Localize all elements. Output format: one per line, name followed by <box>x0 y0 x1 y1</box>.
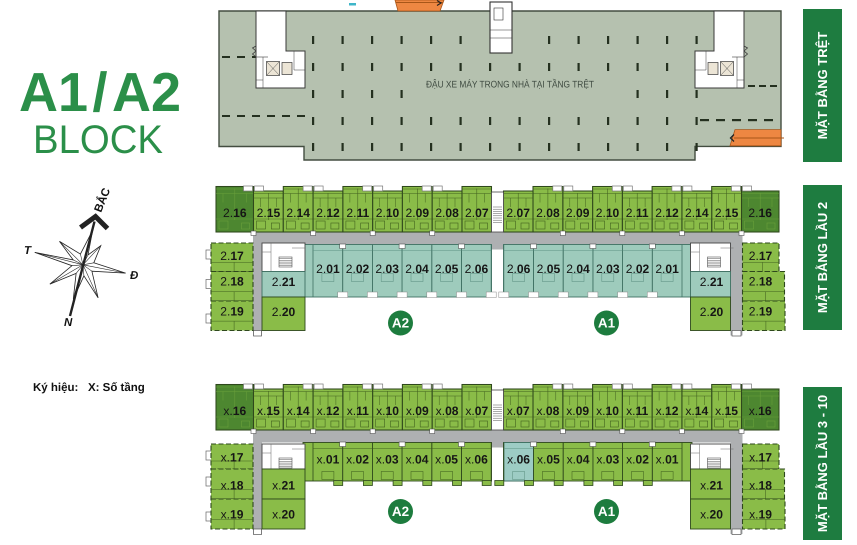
svg-text:x.14: x.14 <box>287 404 310 418</box>
svg-text:2.17: 2.17 <box>220 249 244 263</box>
svg-text:2.15: 2.15 <box>715 206 739 220</box>
svg-text:2.12: 2.12 <box>655 206 679 220</box>
svg-text:x.12: x.12 <box>656 404 679 418</box>
svg-text:MẶT BẰNG TRỆT: MẶT BẰNG TRỆT <box>815 32 830 140</box>
svg-text:x.06: x.06 <box>507 453 530 467</box>
svg-text:x.10: x.10 <box>596 404 619 418</box>
svg-text:2.21: 2.21 <box>272 275 296 289</box>
svg-text:2.01: 2.01 <box>316 262 340 276</box>
svg-text:x.21: x.21 <box>272 479 295 493</box>
svg-text:x.15: x.15 <box>257 404 280 418</box>
svg-text:N: N <box>64 317 73 329</box>
svg-text:x.09: x.09 <box>566 404 589 418</box>
svg-text:2.05: 2.05 <box>537 262 561 276</box>
svg-text:x.17: x.17 <box>221 451 244 465</box>
svg-text:x.05: x.05 <box>537 453 560 467</box>
svg-text:x.04: x.04 <box>567 453 590 467</box>
svg-text:2.20: 2.20 <box>700 305 724 319</box>
svg-text:2.04: 2.04 <box>405 262 429 276</box>
svg-text:x.02: x.02 <box>346 453 369 467</box>
svg-text:2.01: 2.01 <box>655 262 679 276</box>
svg-text:x.16: x.16 <box>749 404 772 418</box>
svg-text:x.07: x.07 <box>507 404 530 418</box>
svg-text:x.01: x.01 <box>656 453 679 467</box>
svg-text:x.19: x.19 <box>221 508 244 522</box>
svg-text:2.19: 2.19 <box>749 305 773 319</box>
svg-text:2.09: 2.09 <box>566 206 590 220</box>
svg-text:A2: A2 <box>392 316 409 331</box>
svg-text:x.16: x.16 <box>223 404 246 418</box>
svg-text:2.14: 2.14 <box>685 206 709 220</box>
svg-text:A2: A2 <box>392 504 409 519</box>
svg-text:2.10: 2.10 <box>376 206 400 220</box>
svg-text:x.12: x.12 <box>317 404 340 418</box>
svg-text:MẶT BẰNG LẦU 3 - 10: MẶT BẰNG LẦU 3 - 10 <box>815 395 830 532</box>
svg-text:A1: A1 <box>598 504 616 519</box>
svg-text:2.16: 2.16 <box>748 206 772 220</box>
svg-text:2.15: 2.15 <box>257 206 281 220</box>
svg-text:MẶT BẰNG LẦU 2: MẶT BẰNG LẦU 2 <box>815 202 830 313</box>
svg-text:2.21: 2.21 <box>700 275 724 289</box>
svg-text:x.06: x.06 <box>465 453 488 467</box>
svg-text:x.21: x.21 <box>700 479 723 493</box>
svg-text:2.11: 2.11 <box>346 206 369 220</box>
svg-text:A1: A1 <box>598 316 616 331</box>
svg-text:2.02: 2.02 <box>626 262 650 276</box>
svg-text:x.07: x.07 <box>465 404 488 418</box>
svg-text:x.18: x.18 <box>221 479 244 493</box>
svg-text:x.15: x.15 <box>715 404 738 418</box>
svg-text:x.17: x.17 <box>749 451 772 465</box>
svg-text:A1 / A2: A1 / A2 <box>19 61 181 123</box>
svg-text:x.10: x.10 <box>376 404 399 418</box>
svg-text:2.08: 2.08 <box>435 206 459 220</box>
svg-text:x.03: x.03 <box>596 453 619 467</box>
svg-text:2.18: 2.18 <box>220 275 244 289</box>
svg-text:2.04: 2.04 <box>566 262 590 276</box>
svg-text:x.20: x.20 <box>272 508 295 522</box>
svg-text:2.07: 2.07 <box>506 206 530 220</box>
svg-text:ĐẬU XE MÁY TRONG NHÀ TẠI TẦNG: ĐẬU XE MÁY TRONG NHÀ TẠI TẦNG TRỆT <box>426 79 594 91</box>
svg-text:2.03: 2.03 <box>375 262 399 276</box>
svg-text:x.14: x.14 <box>685 404 708 418</box>
svg-text:x.20: x.20 <box>700 508 723 522</box>
svg-text:x.01: x.01 <box>316 453 339 467</box>
svg-text:2.17: 2.17 <box>749 249 773 263</box>
svg-text:x.11: x.11 <box>347 404 369 418</box>
svg-text:2.05: 2.05 <box>435 262 459 276</box>
svg-text:2.16: 2.16 <box>223 206 247 220</box>
svg-text:x.08: x.08 <box>536 404 559 418</box>
svg-text:2.18: 2.18 <box>749 275 773 289</box>
svg-text:2.07: 2.07 <box>465 206 489 220</box>
svg-text:x.04: x.04 <box>406 453 429 467</box>
svg-text:2.14: 2.14 <box>286 206 310 220</box>
svg-text:2.02: 2.02 <box>346 262 370 276</box>
svg-text:2.20: 2.20 <box>272 305 296 319</box>
svg-text:x.11: x.11 <box>626 404 648 418</box>
svg-text:x.03: x.03 <box>376 453 399 467</box>
svg-text:2.19: 2.19 <box>220 305 244 319</box>
svg-text:x.09: x.09 <box>406 404 429 418</box>
svg-text:x.02: x.02 <box>626 453 649 467</box>
svg-text:x.08: x.08 <box>436 404 459 418</box>
svg-text:2.09: 2.09 <box>406 206 430 220</box>
svg-text:2.03: 2.03 <box>596 262 620 276</box>
svg-text:x.18: x.18 <box>749 479 772 493</box>
svg-text:2.12: 2.12 <box>316 206 340 220</box>
svg-text:2.06: 2.06 <box>507 262 531 276</box>
svg-text:2.10: 2.10 <box>596 206 620 220</box>
svg-text:2.08: 2.08 <box>536 206 560 220</box>
svg-text:Ký hiệu: X: Số tầng: Ký hiệu: X: Số tầng <box>33 382 145 394</box>
svg-text:2.06: 2.06 <box>465 262 489 276</box>
svg-text:x.19: x.19 <box>749 508 772 522</box>
svg-text:T: T <box>24 245 32 257</box>
svg-text:Đ: Đ <box>130 270 138 282</box>
svg-text:x.05: x.05 <box>435 453 458 467</box>
svg-text:2.11: 2.11 <box>626 206 649 220</box>
svg-text:BLOCK: BLOCK <box>33 118 163 162</box>
